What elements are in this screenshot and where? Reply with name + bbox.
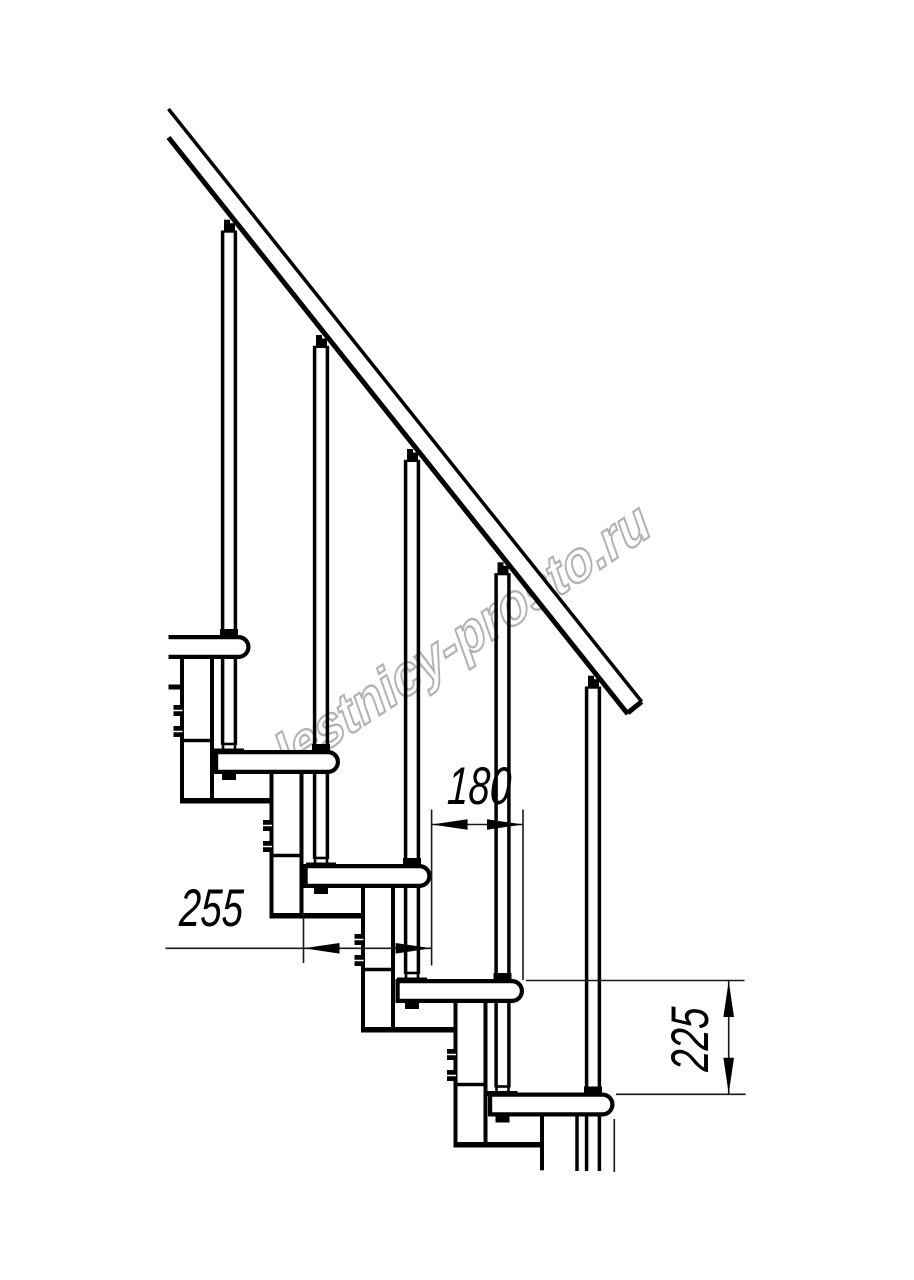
svg-text:255: 255 [177,879,245,938]
svg-text:180: 180 [446,757,513,816]
svg-text:225: 225 [661,1005,720,1073]
